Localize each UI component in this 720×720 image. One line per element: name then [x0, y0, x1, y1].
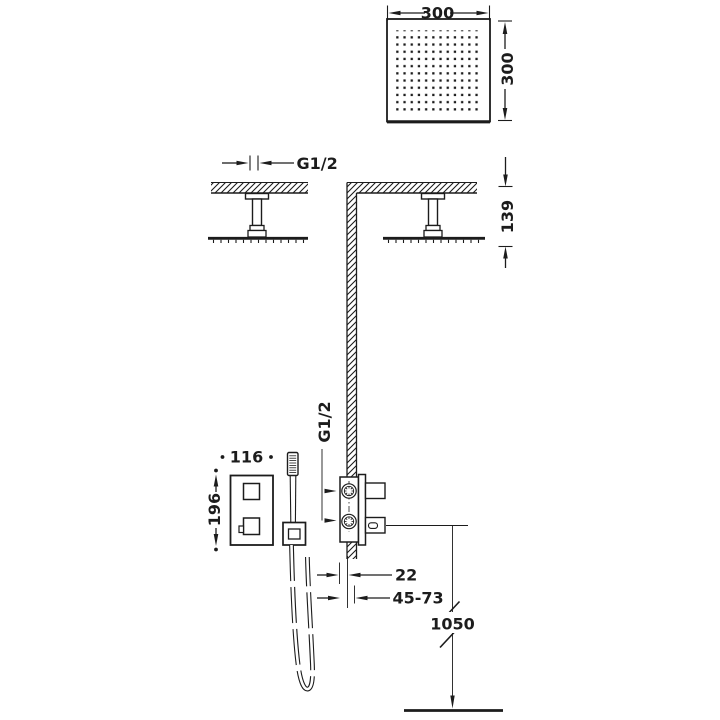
arrow-up-icon [503, 247, 508, 259]
ceiling-slab-right [347, 183, 477, 194]
arrow-up-icon [214, 475, 219, 487]
upper-knob-side [366, 483, 386, 499]
arrow-left-icon [356, 596, 368, 601]
dim-hose-length-label: 1050 [430, 615, 475, 634]
arrow-left-icon [260, 161, 272, 166]
arrow-right-icon [477, 11, 489, 16]
nozzle-ticks [389, 240, 479, 243]
dim-wall-gap-label: 22 [395, 566, 417, 585]
arrow-left-icon [349, 573, 361, 578]
dim-rough-in-range: 45-73 [317, 589, 444, 608]
dim-plate-width-label: 116 [230, 448, 263, 467]
ceiling-flange [246, 194, 269, 200]
ceiling-mount-section-view: G1/2 139 [208, 154, 517, 268]
arrow-right-icon [325, 518, 337, 523]
mixer-front-view: 116 196 [205, 448, 273, 552]
arrow-right-icon [328, 596, 340, 601]
dim-plate-height-label: 196 [205, 493, 224, 526]
drop-pipe [429, 199, 438, 226]
knob-tab [239, 526, 244, 533]
dim-dot-icon [214, 548, 218, 552]
dim-wall-thread: G1/2 [315, 401, 337, 522]
slash-tick-icon [440, 633, 454, 648]
ceiling-slab-left [211, 183, 308, 194]
dim-dot-icon [269, 455, 273, 459]
dim-plate-width: 116 [221, 448, 273, 467]
dim-ceiling-thread: G1/2 [222, 154, 338, 173]
arrow-right-icon [327, 573, 339, 578]
arrow-right-icon [237, 161, 249, 166]
ceiling-flange [422, 194, 445, 200]
dim-dot-icon [221, 455, 225, 459]
drop-pipe [253, 199, 262, 226]
spray-nozzle-grid [396, 30, 482, 113]
dim-ceiling-thread-label: G1/2 [297, 154, 338, 173]
arrow-down-icon [214, 534, 219, 546]
arrow-down-icon [503, 108, 508, 120]
dim-wall-thread-label: G1/2 [315, 401, 334, 442]
dim-head-width-label: 300 [421, 4, 454, 23]
nozzle-ticks [214, 240, 304, 243]
ceiling-shower-head-right [383, 194, 485, 244]
mixer-lower-knob [244, 518, 260, 535]
dim-hose-length: 1050 [386, 526, 503, 711]
dim-head-height-label: 300 [498, 52, 517, 85]
rain-headshower-plan-view: 300 300 [387, 4, 517, 122]
arrow-down-icon [450, 696, 454, 709]
dim-rough-in-range-label: 45-73 [393, 589, 444, 608]
ceiling-shower-head-left [208, 194, 308, 244]
dim-dot-icon [214, 469, 218, 473]
arrow-up-icon [503, 22, 508, 34]
shower-installation-diagram: 300 300 [0, 0, 720, 720]
wall-hatch-lower [347, 543, 357, 560]
dim-ceiling-drop-label: 139 [498, 200, 517, 233]
wall-escutcheon-plate [359, 475, 366, 546]
supply-connection-upper [342, 484, 356, 498]
wall-hatch-upper [347, 193, 357, 477]
arrow-right-icon [325, 489, 337, 494]
dim-head-height: 300 [498, 21, 517, 121]
knob-slot [369, 523, 378, 529]
hand-shower [283, 453, 313, 690]
handset-handle [290, 476, 291, 523]
mixer-upper-knob [244, 484, 260, 500]
supply-connection-lower [342, 514, 356, 528]
dim-plate-height: 196 [205, 469, 224, 552]
technical-drawing-page: 300 300 [0, 0, 720, 720]
arrow-down-icon [503, 175, 508, 187]
arrow-left-icon [389, 11, 401, 16]
dim-ceiling-drop: 139 [498, 157, 517, 268]
